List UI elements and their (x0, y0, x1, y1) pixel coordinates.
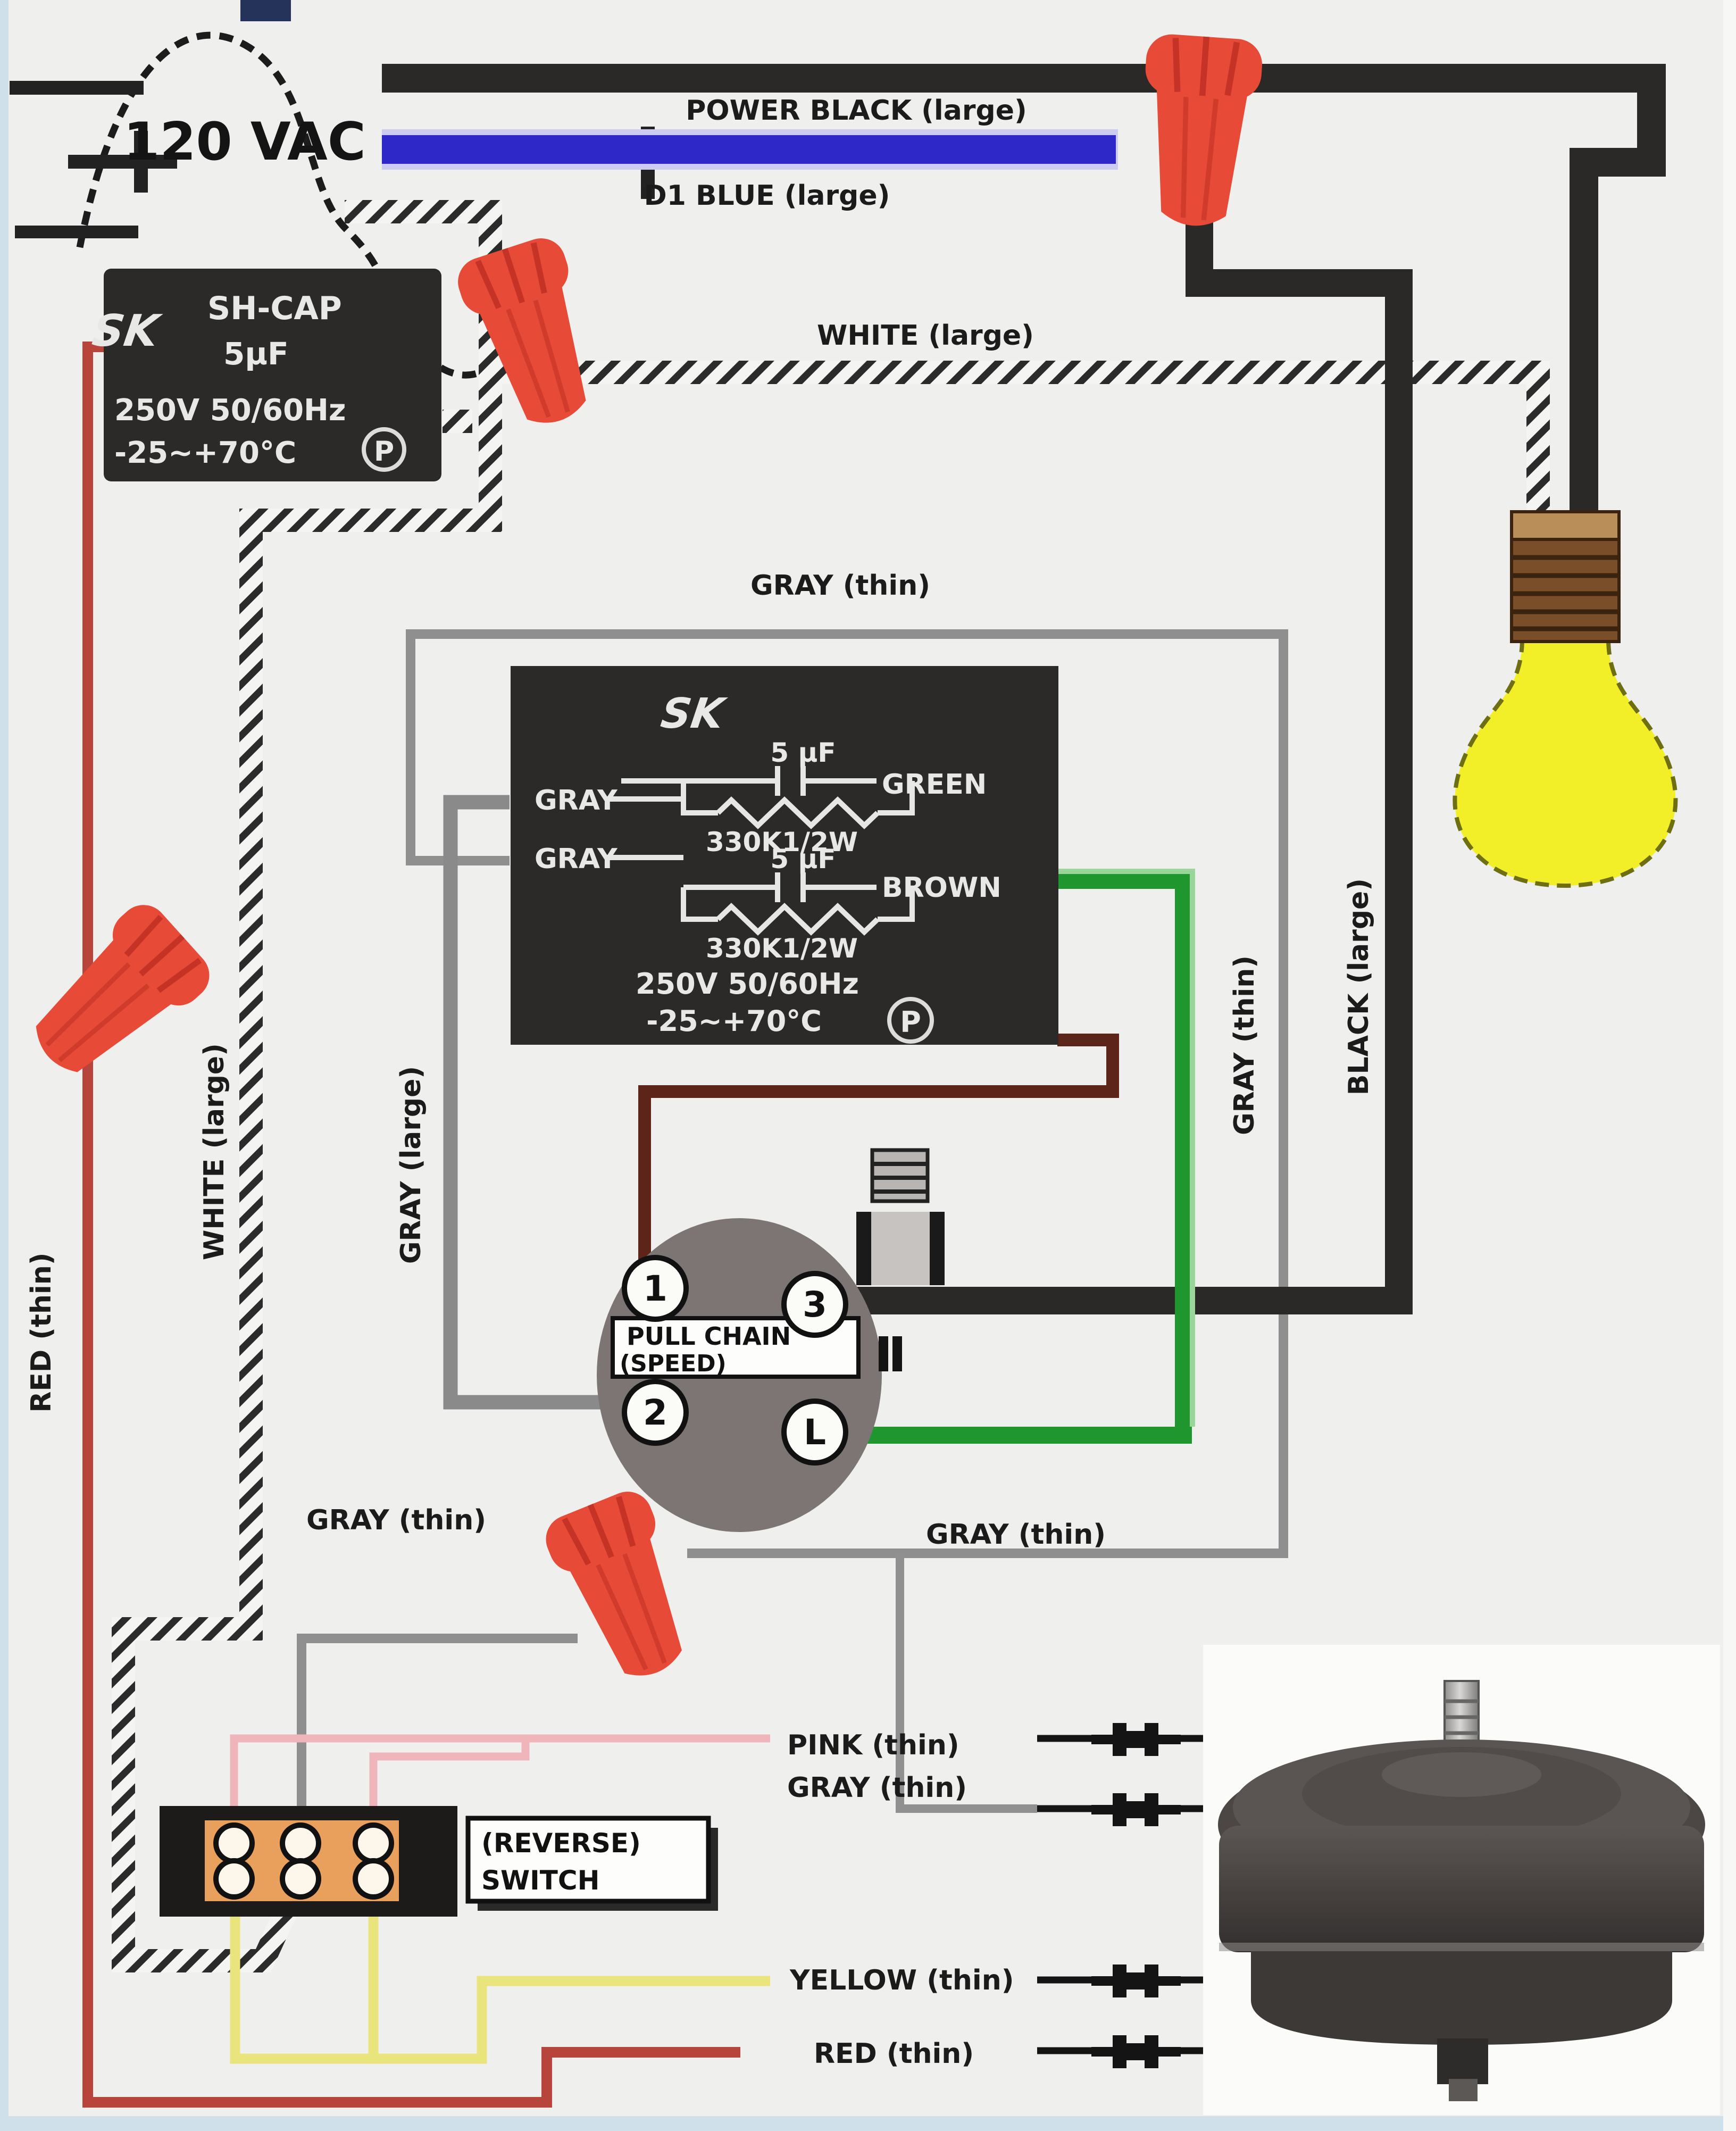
pink-thin-label: PINK (thin) (787, 1729, 959, 1761)
power-black-label: POWER BLACK (large) (686, 95, 1027, 127)
speed-cap-temp: -25~+70°C (646, 1004, 822, 1038)
page-edge-left (0, 0, 9, 2131)
switch-label-line2: (SPEED) (620, 1350, 727, 1377)
top-mark (240, 0, 291, 21)
speed-cap-brown: BROWN (882, 872, 1001, 904)
source-voltage-label: 120 VAC (123, 112, 366, 172)
switch-stem (856, 1150, 945, 1285)
speed-cap-uf2: 5 µF (770, 844, 836, 875)
gray-thin-top-label: GRAY (thin) (750, 570, 930, 602)
sh-cap-name: SH-CAP (207, 290, 342, 327)
sh-cap-mark: P (374, 436, 394, 468)
wire-nut (452, 232, 613, 438)
yellow-thin-label: YELLOW (thin) (789, 1964, 1014, 1996)
gray-thin-bottomleft-label: GRAY (thin) (306, 1504, 486, 1536)
sh-cap-rating: 250V 50/60Hz (114, 393, 346, 428)
wire-nut (1135, 32, 1264, 229)
red-thin-bottom-label: RED (thin) (814, 2038, 974, 2070)
page-edge-bottom (0, 2116, 1736, 2131)
switch-label-line1: PULL CHAIN (627, 1322, 791, 1351)
wiring-diagram: 120 VAC (0, 0, 1736, 2131)
terminal-L: L (804, 1412, 826, 1453)
speed-cap-rating: 250V 50/60Hz (636, 967, 859, 1001)
sh-cap-logo: SK (89, 306, 164, 356)
speed-cap-uf1: 5 µF (770, 737, 836, 768)
pink-connector-icon (1091, 1723, 1181, 1756)
gray-motor-lead-wire (900, 1553, 1037, 1809)
sh-cap-temp: -25~+70°C (114, 436, 296, 470)
gray-thin-motor-label: GRAY (thin) (787, 1772, 967, 1804)
terminal-2: 2 (643, 1392, 667, 1433)
bulb-base (1512, 539, 1619, 642)
gray-large-label: GRAY (large) (395, 1066, 427, 1264)
speed-capacitor: SK 5 µF GRAY GREEN 330K1/2W GRAY 5 µF BR… (511, 666, 1058, 1045)
white-large-left-label: WHITE (large) (198, 1043, 230, 1260)
d1-blue-label: D1 BLUE (large) (644, 180, 890, 212)
sh-cap-capacitor: SK SH-CAP 5µF 250V 50/60Hz -25~+70°C P (89, 269, 441, 481)
speed-cap-gray2: GRAY (535, 843, 618, 875)
speed-cap-gray1: GRAY (535, 785, 618, 817)
terminal-1: 1 (643, 1268, 667, 1309)
wire-nut (11, 895, 219, 1097)
red-connector-icon (1091, 2035, 1181, 2068)
speed-cap-r2: 330K1/2W (706, 933, 858, 964)
yellow-connector-icon (1091, 1964, 1181, 1997)
white-large-top-label: WHITE (large) (817, 320, 1034, 352)
sh-cap-value: 5µF (223, 336, 289, 372)
reverse-label-line2: SWITCH (481, 1865, 599, 1896)
gray-connector-icon (1091, 1793, 1181, 1826)
red-thin-left-label: RED (thin) (26, 1252, 57, 1412)
bulb-glass (1455, 638, 1675, 886)
reverse-label-line1: (REVERSE) (481, 1828, 641, 1859)
light-bulb (1455, 512, 1675, 886)
page-edge-right (1723, 0, 1736, 2131)
gray-thin-mid-label: GRAY (thin) (926, 1519, 1106, 1551)
fan-motor (1203, 1645, 1720, 2115)
gray-thin-right-label: GRAY (thin) (1229, 955, 1261, 1135)
terminal-3: 3 (803, 1284, 827, 1325)
speed-cap-mark: P (900, 1005, 921, 1039)
speed-cap-green: GREEN (882, 769, 987, 801)
reverse-switch: (REVERSE) SWITCH (160, 1806, 718, 1917)
d1-blue-wire (382, 129, 1118, 170)
speed-cap-logo: SK (658, 689, 730, 738)
black-large-label: BLACK (large) (1343, 878, 1375, 1095)
bulb-base-top (1512, 512, 1619, 540)
